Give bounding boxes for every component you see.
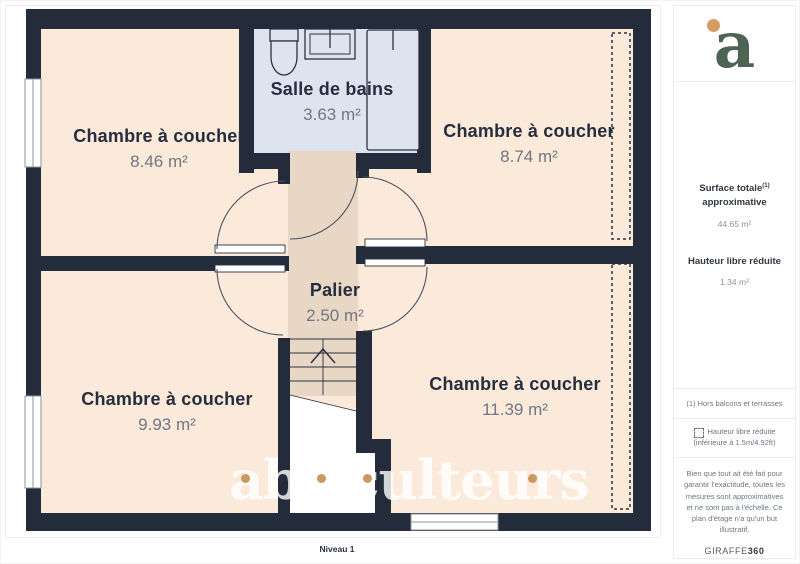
room-name: Salle de bains — [271, 78, 394, 101]
watermark-dot-icon — [528, 474, 537, 483]
room-label-bedroom-tl: Chambre à coucher 8.46 m² — [73, 125, 244, 172]
reduced-height-block: Hauteur libre réduite 1.34 m² — [674, 255, 795, 287]
room-label-bedroom-br: Chambre à coucher 11.39 m² — [429, 373, 600, 420]
disclaimer-cell: Bien que tout ait été fait pour garantir… — [674, 457, 795, 558]
room-name: Chambre à coucher — [443, 120, 614, 143]
watermark-dot-icon — [363, 474, 372, 483]
brand-name: GIRAFFE — [704, 546, 747, 556]
room-area: 11.39 m² — [429, 399, 600, 420]
room-name: Palier — [306, 279, 364, 302]
legend-row: Hauteur libre réduite — [678, 427, 791, 438]
room-label-bedroom-bl: Chambre à coucher 9.93 m² — [81, 388, 252, 435]
room-label-landing: Palier 2.50 m² — [306, 279, 364, 326]
reduced-height-legend-icon — [694, 428, 704, 438]
room-name: Chambre à coucher — [429, 373, 600, 396]
room-label-bathroom: Salle de bains 3.63 m² — [271, 78, 394, 125]
total-surface-title-text2: approximative — [702, 197, 766, 208]
total-surface-title: Surface totale(1) approximative — [674, 182, 795, 211]
level-label: Niveau 1 — [301, 544, 373, 554]
room-area: 8.74 m² — [443, 146, 614, 167]
room-area: 2.50 m² — [306, 305, 364, 326]
disclaimer-text: Bien que tout ait été fait pour garantir… — [682, 468, 787, 536]
footnote: (1) Hors balcons et terrasses — [674, 388, 795, 418]
brand-suffix: 360 — [748, 546, 765, 556]
floor-plan-page: Chambre à coucher 8.46 m² Salle de bains… — [0, 0, 800, 564]
reduced-height-value: 1.34 m² — [674, 277, 795, 287]
legend-text-line2: (inférieure à 1.5m/4.92ft) — [678, 438, 791, 449]
total-surface-value: 44.65 m² — [674, 219, 795, 229]
room-area: 8.46 m² — [73, 151, 244, 172]
legend-text-line1: Hauteur libre réduite — [708, 427, 776, 438]
watermark-dot-icon — [241, 474, 250, 483]
watermark-dot-icon — [317, 474, 326, 483]
legend-cell: Hauteur libre réduite (inférieure à 1.5m… — [674, 418, 795, 457]
giraffe360-brand: GIRAFFE360 — [682, 545, 787, 559]
room-label-bedroom-tr: Chambre à coucher 8.74 m² — [443, 120, 614, 167]
logo-cell: a — [674, 6, 795, 82]
room-area: 9.93 m² — [81, 414, 252, 435]
reduced-height-title: Hauteur libre réduite — [674, 255, 795, 269]
room-name: Chambre à coucher — [81, 388, 252, 411]
info-sidebar: a Surface totale(1) approximative 44.65 … — [673, 5, 796, 559]
toilet-icon — [270, 29, 298, 75]
total-surface-block: Surface totale(1) approximative 44.65 m² — [674, 182, 795, 229]
total-surface-title-text: Surface totale — [699, 183, 762, 194]
measurements-cell: Surface totale(1) approximative 44.65 m²… — [674, 82, 795, 388]
footnote-marker: (1) — [762, 183, 769, 189]
room-name: Chambre à coucher — [73, 125, 244, 148]
room-area: 3.63 m² — [271, 104, 394, 125]
sink-icon — [305, 29, 355, 59]
